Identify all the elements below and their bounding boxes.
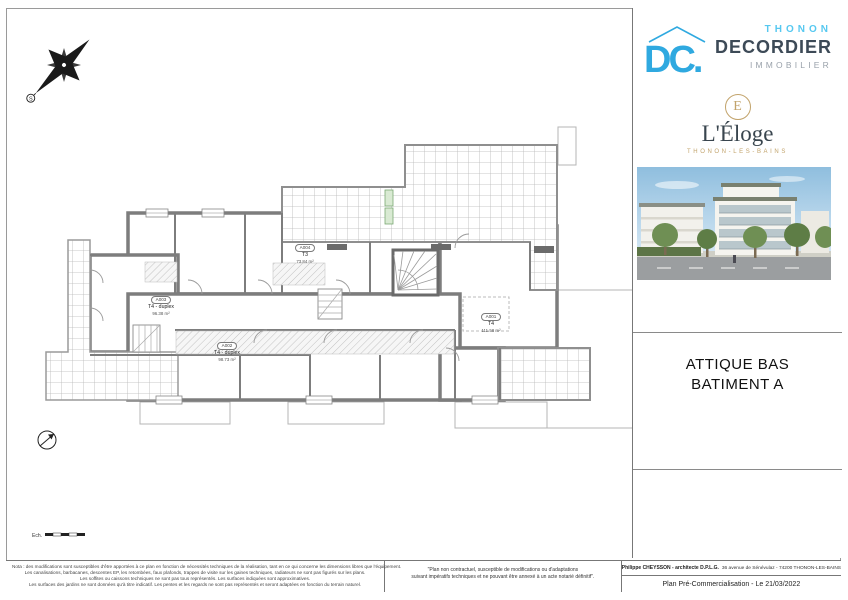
plan-status: Plan Pré-Commercialisation - Le 21/03/20… bbox=[662, 581, 800, 588]
apartment-ref: A002 bbox=[217, 342, 238, 350]
plan-title: ATTIQUE BAS BATIMENT A bbox=[633, 332, 842, 470]
disclaimer-line2: suivant impératifs techniques et ne pouv… bbox=[385, 574, 621, 581]
apartment-ref: A004 bbox=[295, 244, 316, 252]
project-name: L'Éloge bbox=[633, 121, 842, 147]
agency-logo: DC. THONON DECORDIER IMMOBILIER bbox=[633, 14, 842, 94]
notes-line4: Les surfaces des jardins ne sont données… bbox=[12, 582, 378, 588]
notes-line2: Les canalisations, barbacanes, descentes… bbox=[12, 570, 378, 576]
disclaimer: "Plan non contractuel, susceptible de mo… bbox=[385, 561, 622, 592]
apartment-area: 98.73 m² bbox=[196, 357, 258, 363]
compass-rose-icon: S bbox=[10, 23, 107, 120]
sidebar: DC. THONON DECORDIER IMMOBILIER E L'Élog… bbox=[632, 8, 842, 558]
apartment-label-a002: A002 T4 - duplex 98.73 m² bbox=[196, 340, 258, 362]
disclaimer-line1: "Plan non contractuel, susceptible de mo… bbox=[385, 567, 621, 574]
project-city: THONON-LES-BAINS bbox=[633, 149, 842, 155]
project-logo: E L'Éloge THONON-LES-BAINS bbox=[633, 92, 842, 168]
project-monogram-icon: E bbox=[725, 94, 751, 120]
svg-text:DC.: DC. bbox=[644, 39, 701, 80]
plan-sheet: S Ech. bbox=[0, 0, 848, 600]
apartment-label-a004: A004 T3 73.84 m² bbox=[274, 242, 336, 264]
apartment-area: 73.84 m² bbox=[274, 259, 336, 265]
agency-logo-icon: DC. bbox=[643, 22, 709, 80]
scale-label: Ech. bbox=[32, 533, 42, 539]
apartment-ref: A001 bbox=[481, 313, 502, 321]
architect-name: Philippe CHEYSSON - architecte D.P.L.G. bbox=[622, 565, 719, 571]
apartment-area: 96.38 m² bbox=[130, 311, 192, 317]
plan-title-line2: BATIMENT A bbox=[691, 375, 784, 395]
plan-title-line1: ATTIQUE BAS bbox=[686, 355, 790, 375]
notes: Nota : des modifications sont susceptibl… bbox=[6, 561, 385, 592]
apartment-ref: A003 bbox=[151, 296, 172, 304]
north-arrow-icon bbox=[38, 431, 56, 449]
apartment-area: 111.58 m² bbox=[460, 328, 522, 334]
title-block: Philippe CHEYSSON - architecte D.P.L.G. … bbox=[622, 561, 841, 592]
apartment-label-a001: A001 T4 111.58 m² bbox=[460, 311, 522, 333]
apartment-label-a003: A003 T4 - duplex 96.38 m² bbox=[130, 294, 192, 316]
notes-line1: Nota : des modifications sont susceptibl… bbox=[12, 564, 378, 570]
scale-bar: Ech. bbox=[32, 533, 85, 539]
agency-field: IMMOBILIER bbox=[715, 60, 832, 70]
stairwell bbox=[393, 250, 438, 295]
agency-name: DECORDIER bbox=[715, 37, 832, 58]
architect-address: 36 avenue de Sénévulaz - 74200 THONON-LE… bbox=[722, 566, 841, 571]
compass-south-label: S bbox=[29, 96, 33, 102]
bottom-bar: Nota : des modifications sont susceptibl… bbox=[6, 560, 841, 592]
agency-city: THONON bbox=[715, 24, 832, 35]
project-photo bbox=[637, 167, 831, 280]
floor-plan: S Ech. bbox=[6, 8, 632, 558]
